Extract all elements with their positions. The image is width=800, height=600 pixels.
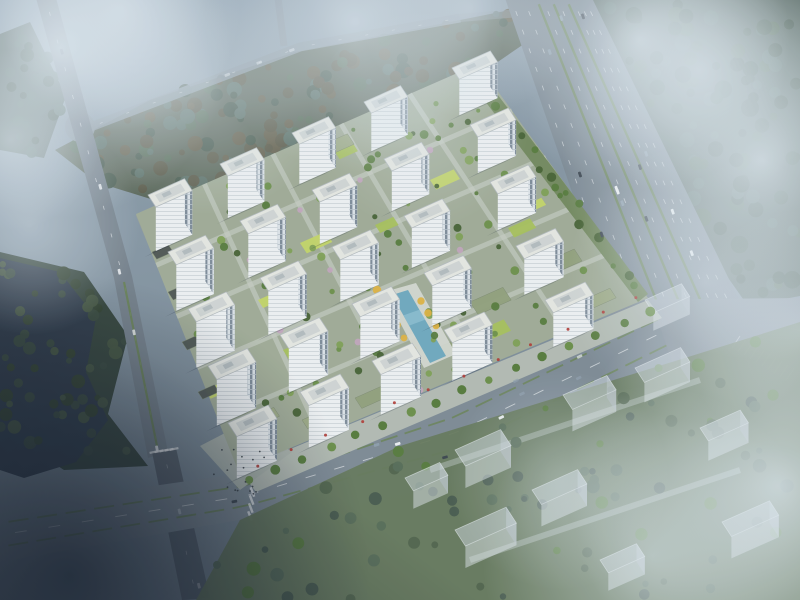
aerial-site-rendering [0,0,800,600]
fog-overlay [0,0,800,600]
rendering-canvas [0,0,800,600]
